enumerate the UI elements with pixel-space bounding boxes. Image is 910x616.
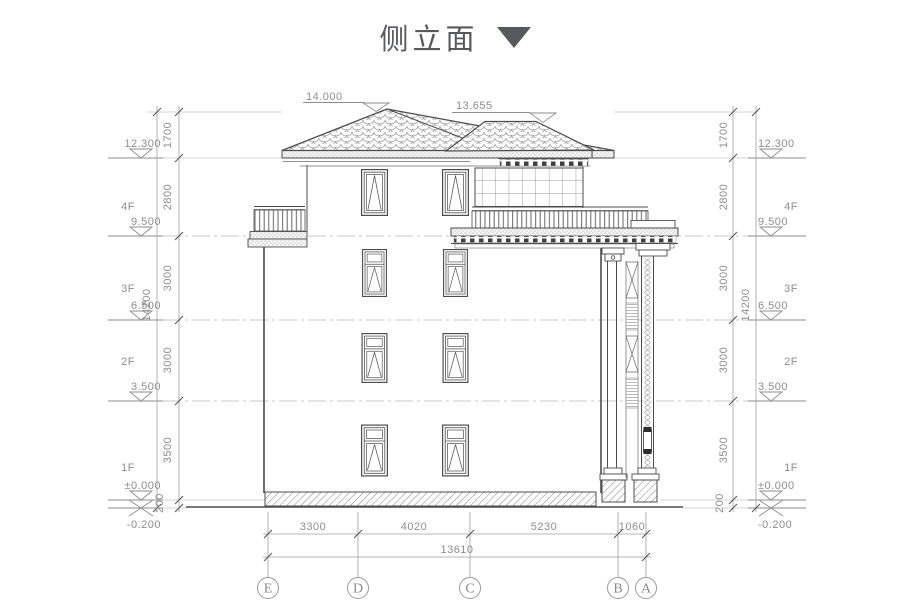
floor-label-3f-left: 3F	[121, 283, 135, 295]
vdim-2800-left: 2800	[162, 184, 174, 210]
elev-label: -0.200	[127, 519, 161, 531]
upper-dentil-band	[498, 159, 589, 167]
window-2f-left	[362, 334, 387, 383]
vdim-3500-right: 3500	[718, 437, 730, 463]
vdim-1700-right: 1700	[718, 122, 730, 148]
vdim-total-right: 14200	[740, 288, 752, 321]
hdim-total: 13610	[440, 544, 473, 556]
vdim-3000a-right: 3000	[718, 265, 730, 291]
floor-label-1f-right: 1F	[784, 462, 798, 474]
elev-label: ±0.000	[124, 480, 161, 492]
elev-label: 3.500	[758, 381, 788, 393]
elev-label: 3.500	[131, 381, 161, 393]
window-3f-left	[363, 250, 387, 297]
elev-label: 6.500	[758, 300, 788, 312]
ridge-main-label: 14.000	[306, 91, 343, 103]
grid-bubble-e: E	[264, 582, 273, 597]
hdim-4020: 4020	[401, 521, 427, 533]
floor-label-4f-right: 4F	[784, 201, 798, 213]
left-dimension-chain: 1700 2800 3000 3000 3500 200 14200	[141, 106, 183, 513]
elevation-drawing-page: 14.000 13.655 12.300 9.500 6.500 3.500 ±…	[0, 0, 910, 616]
left-elevation-markers: 12.300 9.500 6.500 3.500 ±0.000 -0.200 4…	[108, 138, 163, 531]
hdim-3300: 3300	[300, 521, 326, 533]
left-balcony	[248, 207, 307, 248]
vdim-200-left: 200	[154, 493, 166, 513]
window-1f-right	[443, 425, 469, 476]
window-1f-left	[362, 425, 388, 476]
elev-label: 9.500	[758, 216, 788, 228]
marker-9500-right: 9.500	[748, 216, 806, 236]
column-b	[600, 248, 627, 502]
marker-minus0200-right: -0.200	[748, 500, 806, 531]
marker-3500-right: 3.500	[748, 381, 806, 401]
ridge-annotation-secondary: 13.655	[452, 100, 556, 123]
grid-bubble-a: A	[641, 582, 652, 597]
page-title: 侧立面	[379, 16, 478, 58]
ridge-annotation-main: 14.000	[303, 91, 389, 112]
grid-bubble-c: C	[465, 582, 474, 597]
vdim-3000b-right: 3000	[718, 347, 730, 373]
elev-label: 9.500	[131, 216, 161, 228]
right-dimension-chain: 1700 2800 3000 3000 3500 200 14200	[714, 106, 760, 513]
marker-9500-left: 9.500	[108, 216, 163, 236]
window-3f-right	[444, 250, 468, 297]
vdim-3500-left: 3500	[162, 437, 174, 463]
floor-label-3f-right: 3F	[784, 283, 798, 295]
grid-axis-bubbles: E D C B A	[258, 562, 657, 599]
curtain-wall	[475, 168, 583, 207]
brace-strip	[626, 261, 638, 478]
elev-label: -0.200	[758, 519, 792, 531]
marker-3500-left: 3.500	[108, 381, 163, 401]
marker-6500-right: 6.500	[748, 300, 806, 320]
elev-label: 12.300	[124, 138, 161, 150]
bottom-dimension-chain: 3300 4020 5230 1060 13610	[263, 512, 651, 562]
elev-label: ±0.000	[758, 480, 795, 492]
vdim-2800-right: 2800	[718, 184, 730, 210]
vdim-200-right: 200	[714, 493, 726, 513]
building	[186, 109, 683, 507]
marker-12300-right: 12.300	[748, 138, 806, 158]
hdim-5230: 5230	[531, 521, 557, 533]
window-2f-right	[443, 334, 468, 383]
vdim-total-left: 14200	[141, 288, 153, 321]
elev-label: 12.300	[758, 138, 795, 150]
ridge-secondary-label: 13.655	[456, 100, 493, 112]
vdim-3000b-left: 3000	[162, 347, 174, 373]
downpipe-fixture	[644, 427, 652, 454]
vdim-3000a-left: 3000	[162, 265, 174, 291]
right-elevation-markers: 12.300 9.500 6.500 3.500 ±0.000 -0.200 4…	[748, 138, 806, 531]
floor-label-4f-left: 4F	[121, 201, 135, 213]
right-balcony-railing	[472, 207, 648, 228]
floor-label-2f-right: 2F	[784, 356, 798, 368]
window-4f-right	[443, 170, 469, 216]
chevron-down-icon[interactable]	[497, 27, 531, 48]
elevation-drawing: 14.000 13.655 12.300 9.500 6.500 3.500 ±…	[0, 0, 910, 616]
grid-bubble-b: B	[613, 582, 622, 597]
drawing-title-bar: 侧立面	[0, 16, 910, 58]
floor-label-2f-left: 2F	[121, 356, 135, 368]
floor-label-1f-left: 1F	[121, 462, 135, 474]
hdim-1060: 1060	[619, 521, 645, 533]
marker-0000-right: ±0.000	[748, 480, 806, 500]
grid-bubble-d: D	[353, 582, 363, 597]
vdim-1700-left: 1700	[162, 122, 174, 148]
marker-12300-left: 12.300	[108, 138, 163, 158]
window-4f-left	[362, 170, 388, 216]
marker-6500-left: 6.500	[108, 300, 163, 320]
